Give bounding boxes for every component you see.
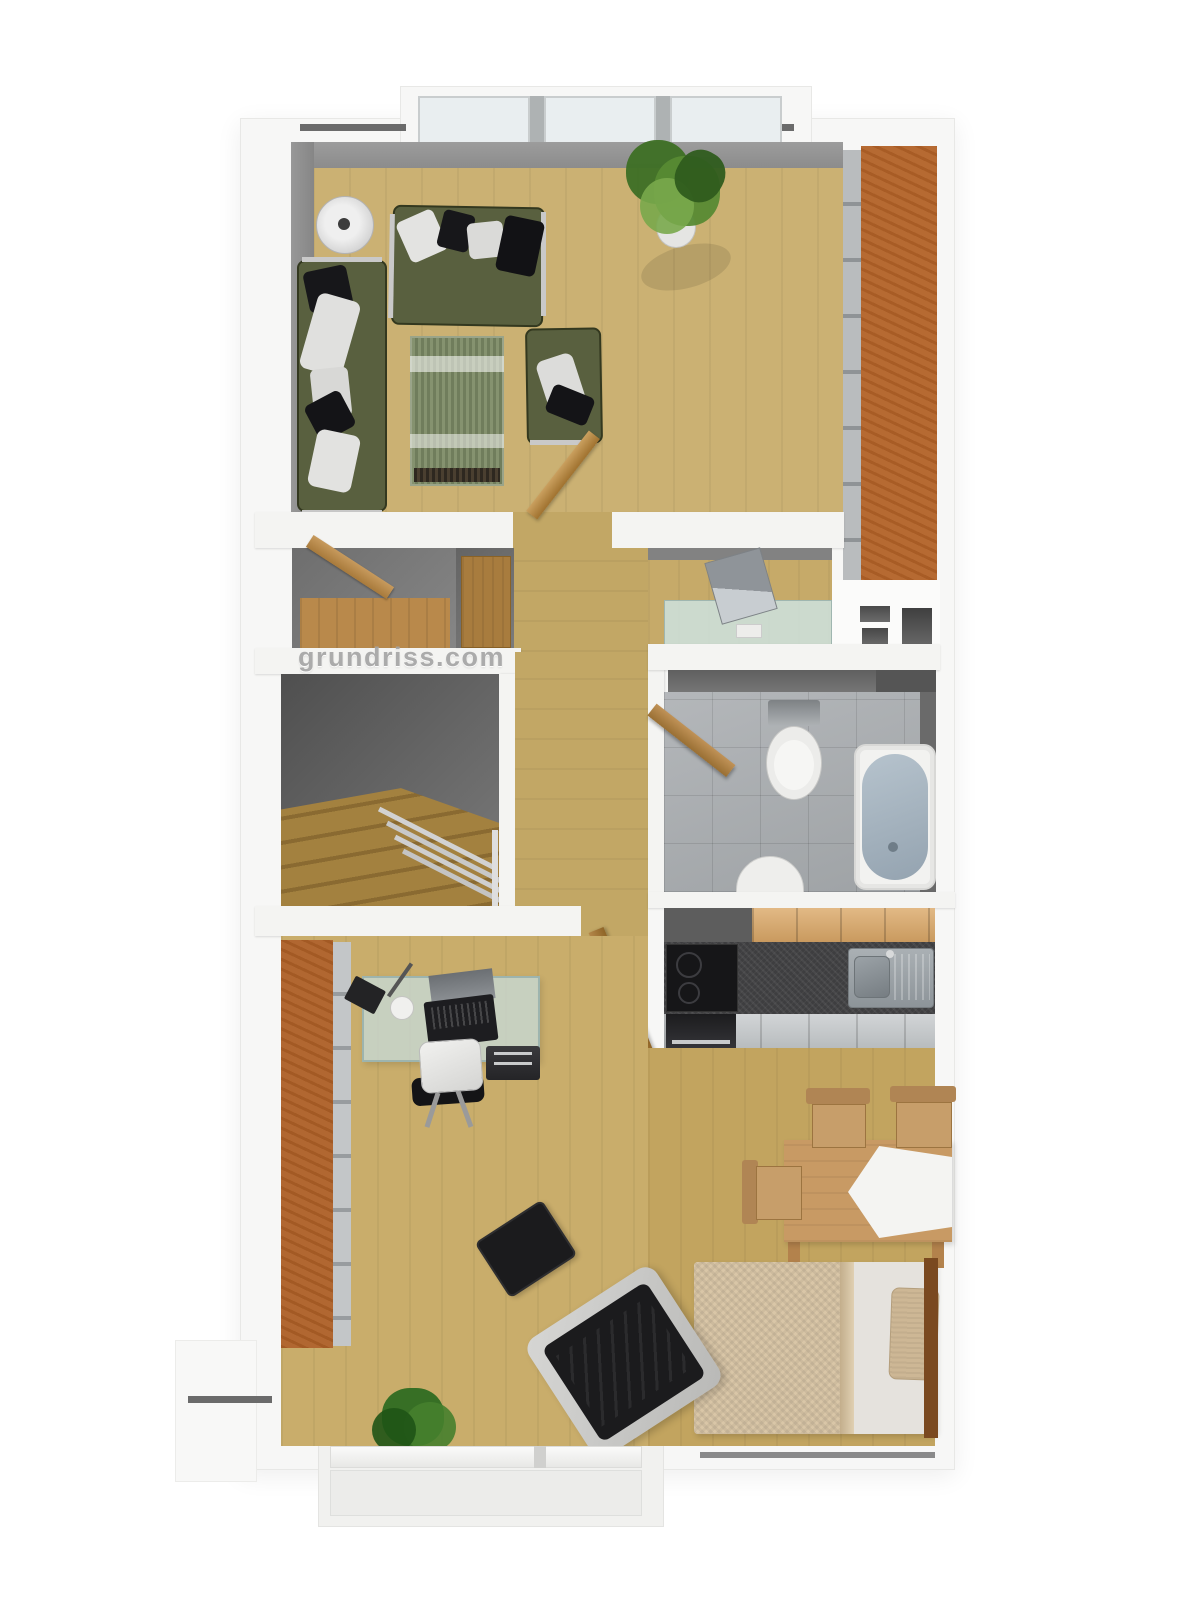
corridor-floor — [515, 652, 648, 920]
dining-chair-seat — [756, 1166, 802, 1220]
shaft-opening — [860, 606, 890, 622]
sink-bowl — [854, 956, 890, 998]
kitchen-upper-cabinets — [752, 908, 935, 942]
wardrobe-front-left — [333, 942, 351, 1346]
floor-lamp-hub — [338, 218, 350, 230]
niche-door — [461, 556, 511, 648]
living-wall-face-top — [313, 142, 843, 168]
dressing-desk-item — [736, 624, 762, 638]
floorplan-canvas: grundriss.com — [0, 0, 1200, 1600]
hall-floor — [514, 548, 648, 652]
bathtub-basin — [862, 754, 928, 880]
wardrobe-body-left — [281, 940, 333, 1348]
toilet-tank — [768, 700, 820, 726]
door-opening-floor — [513, 512, 612, 548]
exterior-line-porch — [188, 1396, 272, 1403]
oven-handle — [672, 1040, 730, 1044]
exterior-line-top-left — [300, 124, 406, 131]
interior-wall — [499, 674, 515, 920]
dining-chair-seat — [812, 1104, 866, 1148]
cooktop — [666, 944, 738, 1012]
interior-wall — [612, 512, 844, 548]
desk-lamp-shade — [390, 996, 414, 1020]
coffee-table-glass-band — [410, 356, 504, 372]
dining-chair-back — [806, 1088, 870, 1104]
interior-wall — [648, 892, 955, 908]
cooktop-burner — [676, 952, 702, 978]
bed-headboard — [924, 1258, 938, 1438]
shaft-opening — [902, 608, 932, 644]
dining-chair-back — [890, 1086, 956, 1102]
office-chair-seat — [418, 1038, 483, 1094]
interior-wall — [255, 906, 581, 936]
balcony-sill-post — [534, 1446, 546, 1468]
dining-chair-seat — [896, 1102, 952, 1148]
toilet-seat — [774, 740, 814, 790]
shaft-opening — [862, 628, 888, 644]
coffee-table-fringe — [414, 468, 500, 482]
porch-slab — [175, 1340, 257, 1482]
bathtub-drain — [888, 842, 898, 852]
bed-blanket-fold — [840, 1262, 854, 1434]
cooktop-burner — [678, 982, 700, 1004]
sink-faucet — [886, 950, 894, 958]
wardrobe-body-right — [861, 146, 937, 598]
balcony-door-sill — [330, 1446, 642, 1468]
coffee-table-glass-band — [410, 434, 504, 448]
drawer-handle — [494, 1062, 532, 1065]
stair-railing-post — [492, 830, 498, 906]
wardrobe-front-right — [843, 150, 863, 596]
exterior-line-bottom-right — [700, 1452, 935, 1458]
interior-wall — [648, 644, 940, 670]
interior-wall — [648, 668, 664, 892]
drawer-handle — [494, 1052, 532, 1055]
sink-drainboard — [894, 954, 930, 1000]
bed-blanket — [694, 1262, 846, 1434]
watermark: grundriss.com — [298, 642, 505, 673]
balcony-deck — [330, 1470, 642, 1516]
sofa-chrome-edge — [302, 257, 382, 262]
interior-wall — [255, 512, 513, 548]
